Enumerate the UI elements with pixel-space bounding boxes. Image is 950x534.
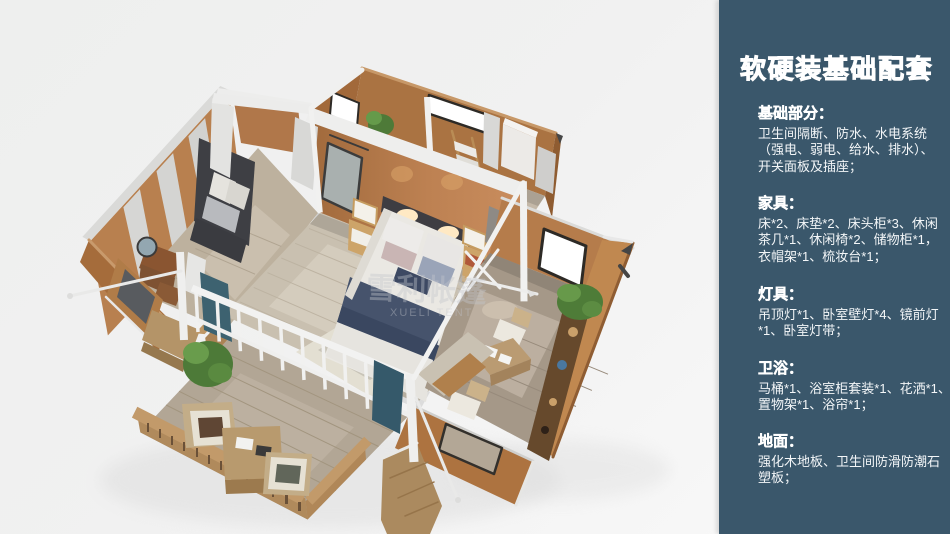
svg-text:雪利帐篷: 雪利帐篷 (366, 272, 487, 309)
svg-text:XUELI TENT: XUELI TENT (390, 307, 473, 319)
